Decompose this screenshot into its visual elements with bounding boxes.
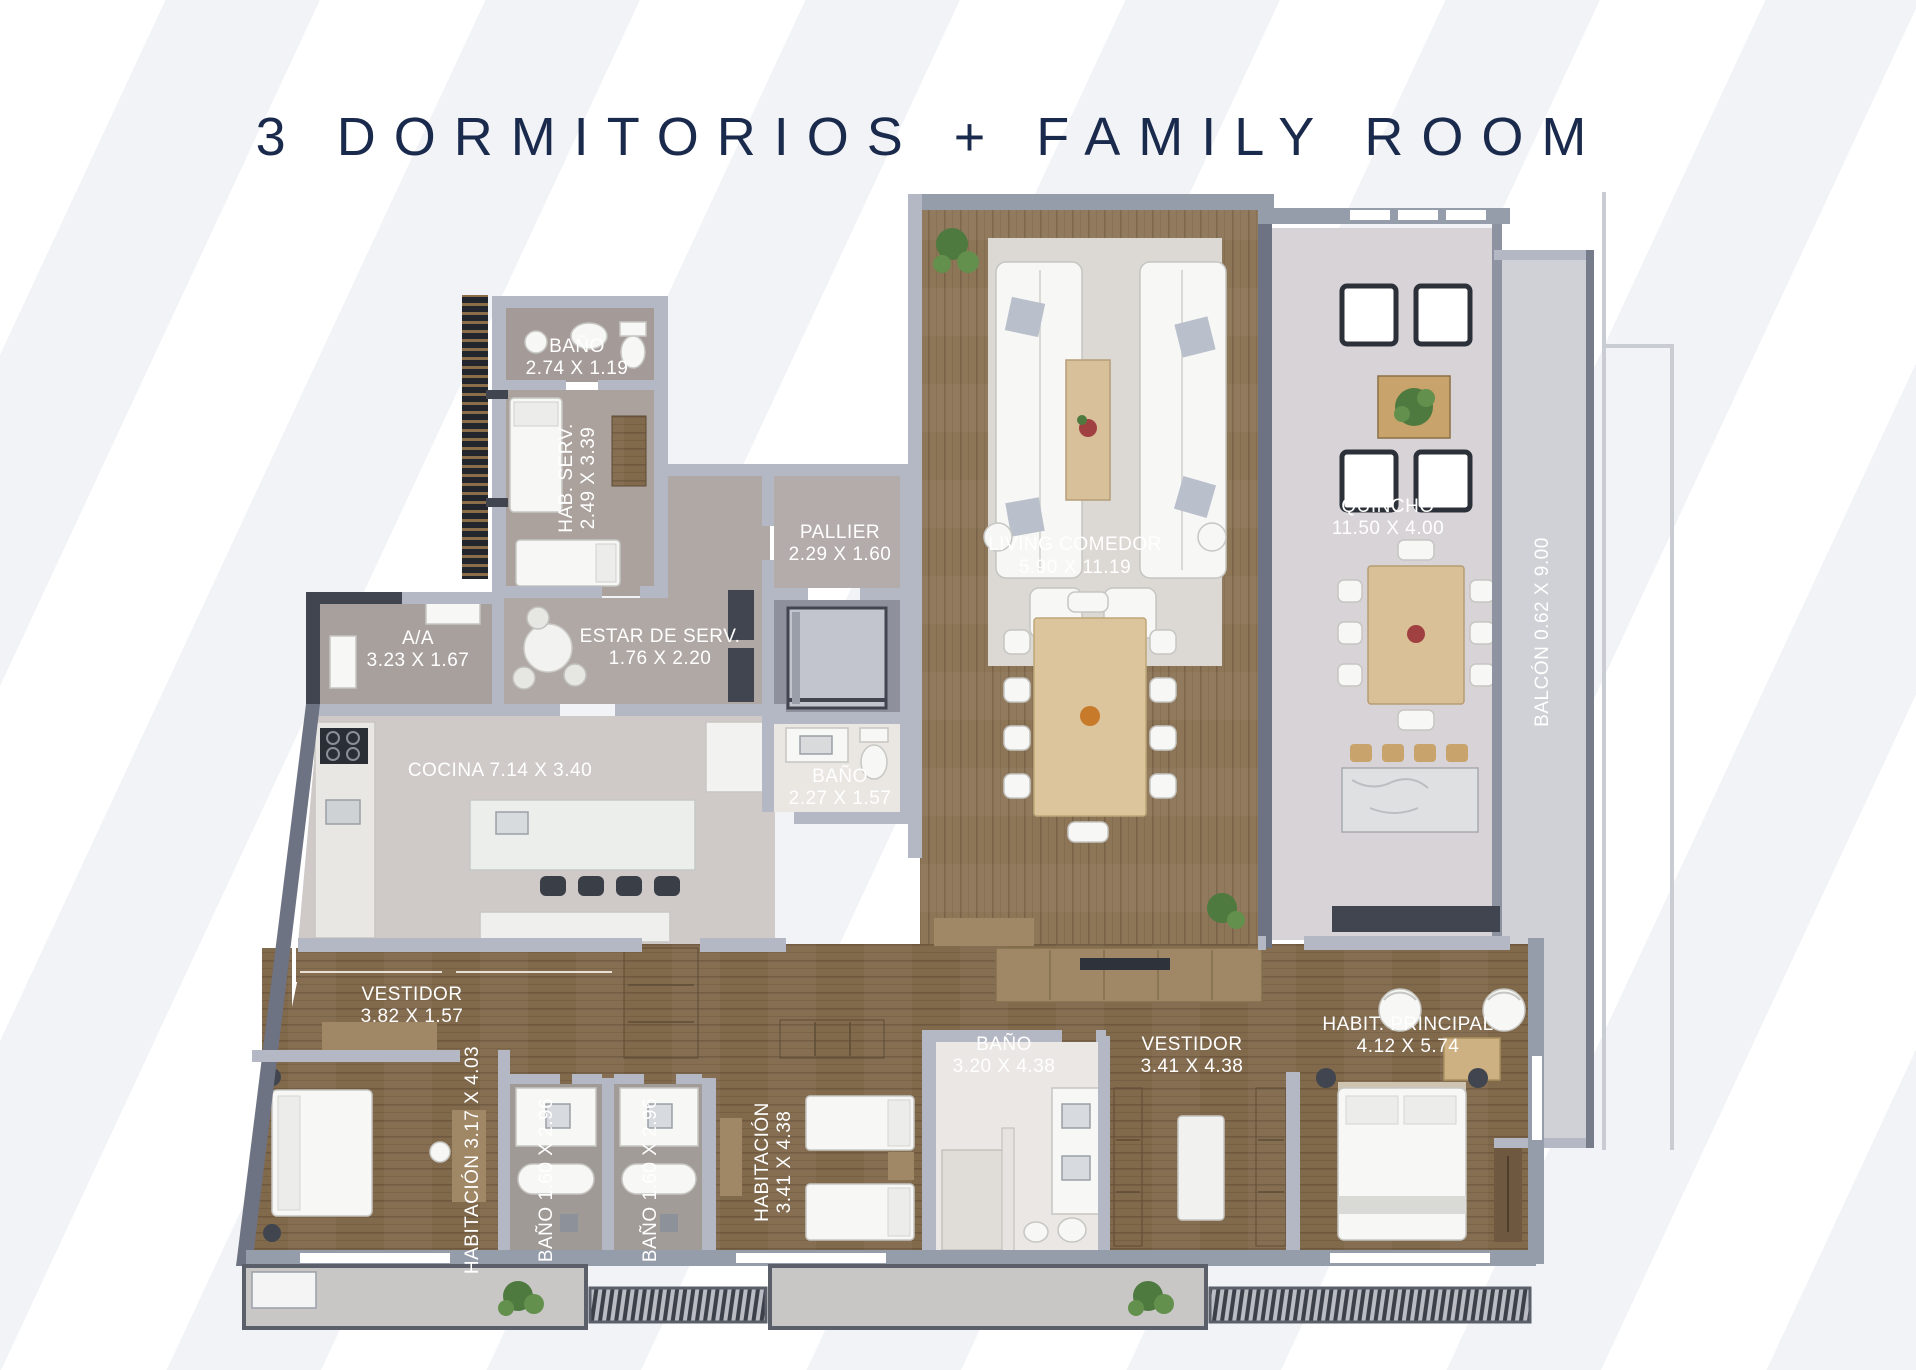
trellis-arm — [486, 390, 508, 399]
label-bano-principal-dims: 3.20 X 4.38 — [953, 1056, 1056, 1077]
label-estar-name: ESTAR DE SERV. — [580, 626, 741, 647]
wall — [762, 600, 774, 812]
terraces — [244, 1266, 1530, 1328]
window — [1532, 1056, 1542, 1140]
label-aa-name: A/A — [402, 628, 434, 649]
wall — [762, 560, 774, 600]
label-balcon: BALCÓN 0.62 X 9.00 — [1531, 537, 1553, 727]
wall — [774, 588, 808, 600]
trellis-arm — [486, 498, 508, 507]
label-living-name: LIVING COMEDOR — [988, 534, 1162, 555]
wall — [614, 1074, 644, 1084]
label-vestidor-principal-dims: 3.41 X 4.38 — [1141, 1056, 1244, 1077]
label-habitacion2-dims: 3.41 X 4.38 — [774, 1111, 795, 1214]
label-bano-serv-name: BAÑO — [549, 335, 605, 357]
wall — [306, 704, 560, 716]
wall — [700, 938, 786, 952]
wall — [572, 1074, 602, 1084]
floorplan-svg: BAÑO 2.74 X 1.19 HAB. SERV. 2.49 X 3.39 … — [0, 0, 1916, 1370]
wall — [762, 476, 774, 526]
kitchen-pantry — [706, 722, 770, 792]
floorplan-page: { "title": "3 DORMITORIOS + FAMILY ROOM"… — [0, 0, 1916, 1370]
coffee-table — [1066, 360, 1110, 500]
label-bano-principal-name: BAÑO — [976, 1033, 1032, 1055]
wall — [1286, 1072, 1300, 1264]
wall — [922, 1030, 936, 1264]
quincho-cabinet — [1332, 906, 1500, 932]
window — [736, 1253, 886, 1263]
wall — [702, 1078, 716, 1254]
railing-frame — [1670, 344, 1674, 1150]
exterior-wall — [914, 194, 1274, 210]
terrace-planter — [252, 1272, 316, 1308]
window — [1446, 210, 1486, 220]
wall — [908, 194, 922, 858]
window — [1350, 210, 1390, 220]
label-habitacion2-name: HABITACIÓN — [751, 1102, 773, 1222]
trellis-screen — [462, 295, 488, 579]
tv-unit — [996, 948, 1262, 1002]
label-bano1: BAÑO 1.60 X 2.96 — [535, 1098, 557, 1262]
label-pallier-name: PALLIER — [800, 522, 880, 543]
wall — [654, 296, 668, 598]
wall — [298, 938, 642, 952]
label-bano-social-name: BAÑO — [812, 765, 868, 787]
wall — [510, 1074, 560, 1084]
label-hab-serv-name: HAB. SERV. — [556, 423, 577, 533]
label-bano-serv-dims: 2.74 X 1.19 — [526, 358, 629, 379]
wall — [860, 588, 900, 600]
wall — [602, 1078, 614, 1254]
wall — [492, 592, 504, 710]
wall — [676, 1074, 702, 1084]
label-bano2: BAÑO 1.60 X 2.96 — [639, 1098, 661, 1262]
label-vestidor-principal-name: VESTIDOR — [1141, 1034, 1242, 1055]
corridor-cabinet-2 — [728, 648, 754, 702]
wall-accent — [306, 592, 320, 714]
wall — [1304, 936, 1510, 950]
label-habit-principal-name: HABIT. PRINCIPAL — [1322, 1014, 1493, 1035]
louver-deck-1 — [590, 1288, 766, 1322]
wall — [640, 586, 668, 598]
wall — [615, 704, 786, 716]
label-vestidor-serv-name: VESTIDOR — [361, 984, 462, 1005]
wall — [492, 296, 506, 598]
aa-unit-1 — [330, 636, 356, 688]
label-vestidor-serv-dims: 3.82 X 1.57 — [361, 1006, 464, 1027]
wall — [492, 586, 602, 598]
wall — [794, 812, 912, 824]
wall — [1098, 1036, 1110, 1254]
wall — [762, 712, 912, 724]
label-pallier-dims: 2.29 X 1.60 — [789, 544, 892, 565]
label-living-dims: 5.90 X 11.19 — [1019, 557, 1131, 578]
wall-dark — [1258, 208, 1272, 948]
louver-deck-2 — [1210, 1288, 1530, 1322]
label-cocina: COCINA 7.14 X 3.40 — [408, 760, 592, 781]
railing-frame — [1602, 344, 1674, 348]
label-quincho-dims: 11.50 X 4.00 — [1332, 518, 1444, 539]
living-console — [934, 918, 1034, 946]
quincho-planter-table — [1378, 376, 1450, 438]
window — [300, 1253, 450, 1263]
wall — [1258, 936, 1266, 950]
balcony-railing — [1586, 250, 1594, 1148]
wall — [252, 1050, 460, 1062]
label-bano-social-dims: 2.27 X 1.57 — [789, 788, 892, 809]
wall — [662, 464, 774, 476]
label-habitacion1: HABITACIÓN 3.17 X 4.03 — [461, 1046, 483, 1274]
elevator — [788, 608, 886, 708]
side-table-2 — [1198, 523, 1226, 551]
kitchen-counter-low — [480, 912, 670, 942]
wall — [1494, 250, 1594, 260]
label-hab-serv-dims: 2.49 X 3.39 — [578, 427, 599, 530]
label-habit-principal-dims: 4.12 X 5.74 — [1357, 1036, 1460, 1057]
kitchen-counter-left — [315, 722, 375, 938]
wall — [492, 380, 566, 390]
wall-accent — [312, 592, 402, 604]
window — [1398, 210, 1438, 220]
label-quincho-name: QUINCHO — [1341, 496, 1434, 517]
wall — [1492, 224, 1502, 948]
wall — [762, 464, 918, 476]
window — [1330, 1253, 1490, 1263]
wall — [492, 296, 668, 308]
label-estar-dims: 1.76 X 2.20 — [609, 648, 712, 669]
label-aa-dims: 3.23 X 1.67 — [367, 650, 470, 671]
wall — [498, 1050, 510, 1264]
wall — [598, 380, 668, 390]
railing-frame — [1602, 192, 1606, 1150]
